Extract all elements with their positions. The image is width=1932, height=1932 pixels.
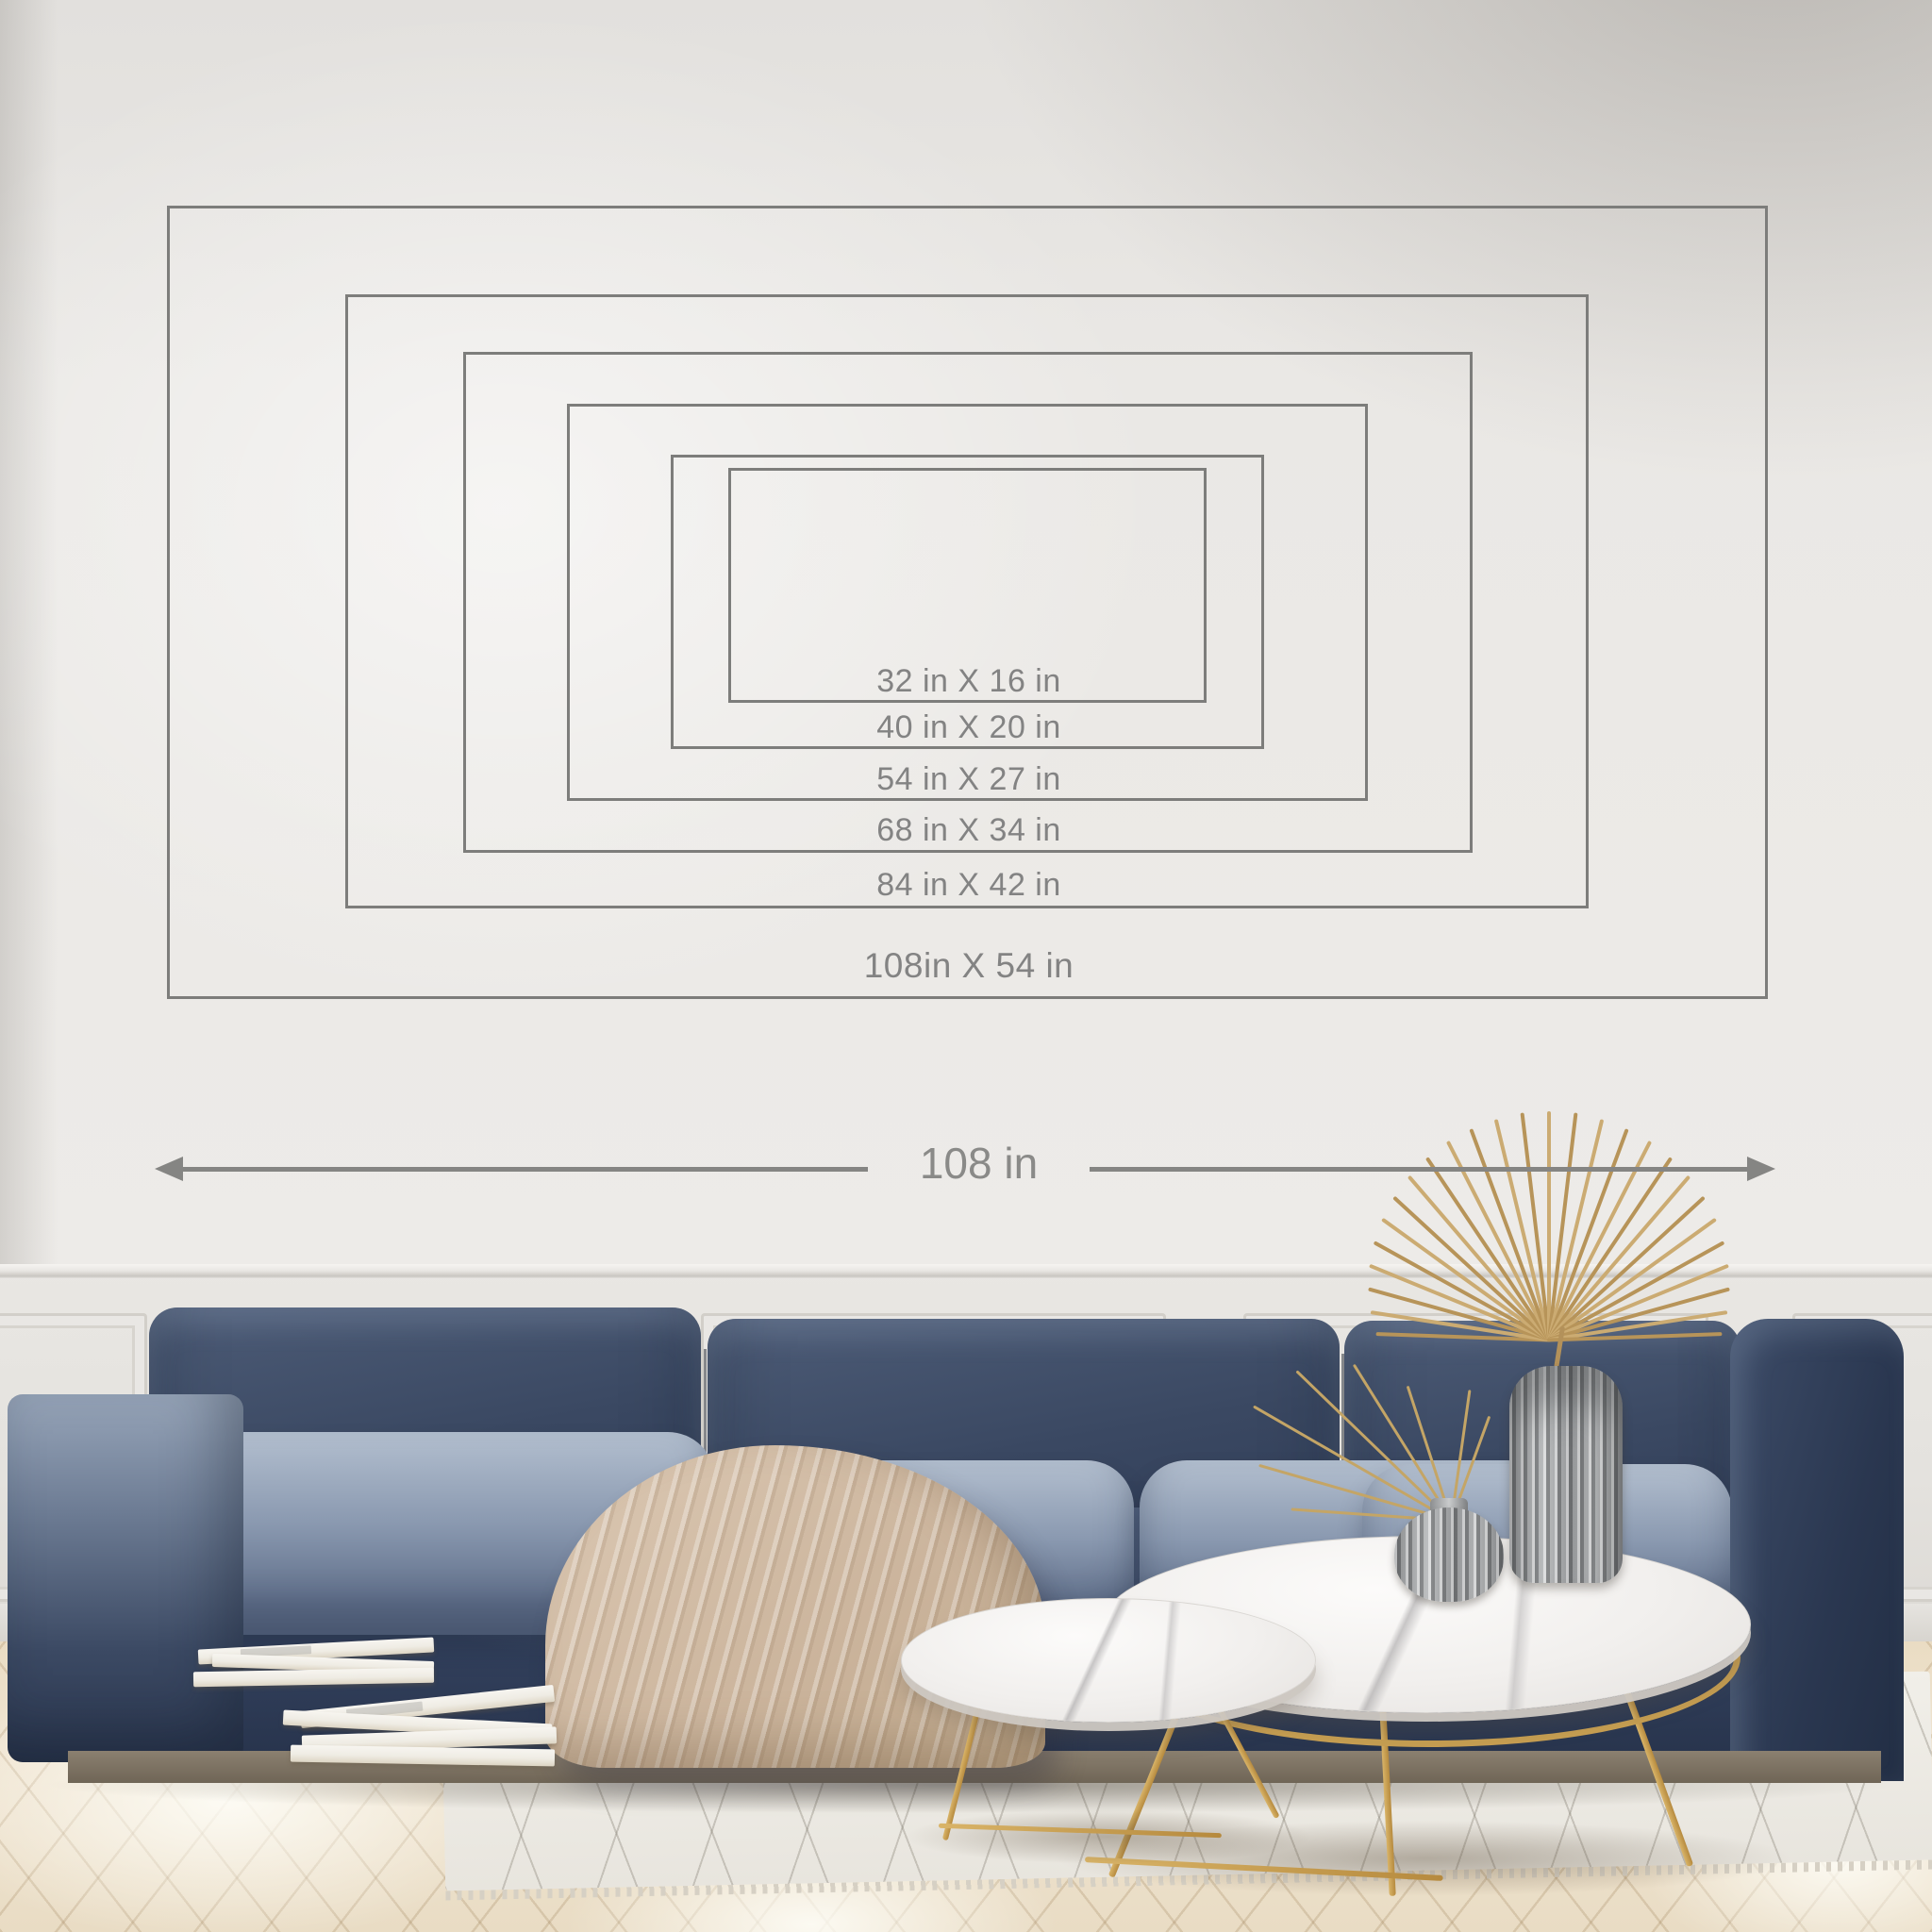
- width-arrow-head-left: [155, 1157, 183, 1181]
- size-label-32x16: 32 in X 16 in: [591, 662, 1346, 700]
- size-label-84x42: 84 in X 42 in: [591, 866, 1346, 904]
- product-size-mockup: 32 in X 16 in 40 in X 20 in 54 in X 27 i…: [0, 0, 1932, 1932]
- width-arrow-line-right: [1090, 1167, 1750, 1172]
- size-label-68x34: 68 in X 34 in: [591, 811, 1346, 849]
- size-chart-overlay: 32 in X 16 in 40 in X 20 in 54 in X 27 i…: [0, 0, 1932, 1932]
- width-arrow-line-left: [181, 1167, 868, 1172]
- width-arrow-head-right: [1747, 1157, 1775, 1181]
- size-label-54x27: 54 in X 27 in: [591, 760, 1346, 798]
- size-label-40x20: 40 in X 20 in: [591, 708, 1346, 746]
- size-label-108x54: 108in X 54 in: [591, 946, 1346, 986]
- width-arrow-label: 108 in: [868, 1138, 1090, 1189]
